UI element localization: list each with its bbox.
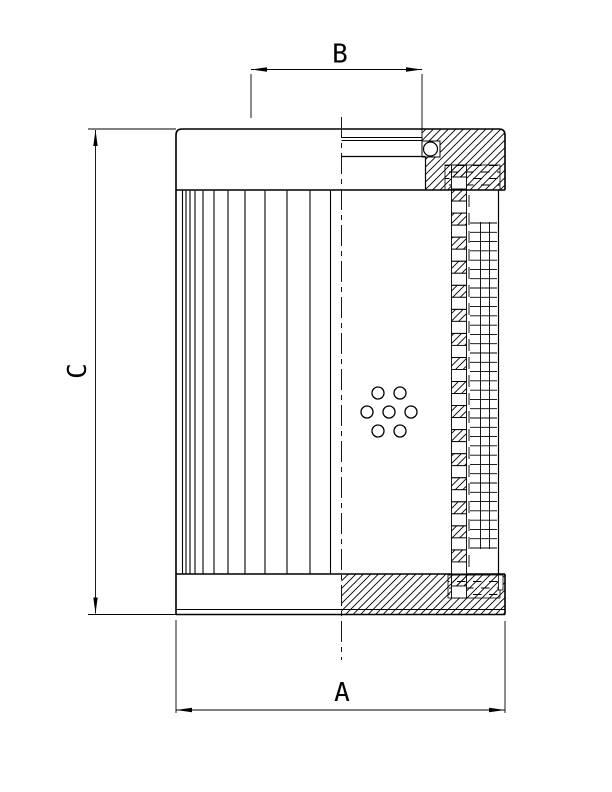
filter-element-technical-drawing: B C A [0, 0, 612, 792]
media-section-block [452, 189, 467, 201]
media-section-block [452, 538, 467, 550]
perforation-hole [394, 425, 406, 437]
media-section-block [452, 261, 467, 273]
filter-media-section-column [452, 165, 467, 598]
media-section-block [452, 478, 467, 490]
media-section-block [452, 394, 467, 406]
media-section-block [452, 562, 467, 574]
media-section-block [452, 550, 467, 562]
media-section-block [452, 430, 467, 442]
media-section-block [452, 177, 467, 189]
media-section-block [452, 237, 467, 249]
perforation-hole [383, 406, 395, 418]
media-section-block [452, 273, 467, 285]
perforation-hole [394, 387, 406, 399]
media-section-block [452, 418, 467, 430]
media-section-block [452, 285, 467, 297]
media-section-block [452, 213, 467, 225]
perforation-hole [405, 406, 417, 418]
support-tube-end [499, 575, 504, 590]
dimension-c-label: C [63, 363, 93, 379]
dimension-a-label: A [334, 678, 350, 708]
media-section-block [452, 249, 467, 261]
media-section-block [452, 225, 467, 237]
media-section-block [452, 321, 467, 333]
media-section-block [452, 297, 467, 309]
dimension-b-label: B [332, 40, 348, 70]
perforation-hole [372, 425, 384, 437]
media-section-block [452, 466, 467, 478]
media-section-block [452, 382, 467, 394]
o-ring-seal [424, 142, 438, 156]
media-section-block [452, 526, 467, 538]
media-section-block [452, 490, 467, 502]
media-section-block [452, 454, 467, 466]
media-section-block [452, 502, 467, 514]
filter-element-sectional-view: B C A [0, 0, 612, 792]
media-section-block [452, 357, 467, 369]
media-section-block [452, 309, 467, 321]
media-section-block [452, 165, 467, 177]
perforation-hole [361, 406, 373, 418]
media-section-block [452, 514, 467, 526]
media-section-block [452, 201, 467, 213]
media-section-block [452, 369, 467, 381]
media-section-block [452, 586, 467, 598]
drawing-background [0, 0, 612, 792]
media-section-block [452, 574, 467, 586]
media-section-block [452, 442, 467, 454]
perforation-hole [372, 387, 384, 399]
media-section-block [452, 406, 467, 418]
media-section-block [452, 345, 467, 357]
media-section-block [452, 333, 467, 345]
